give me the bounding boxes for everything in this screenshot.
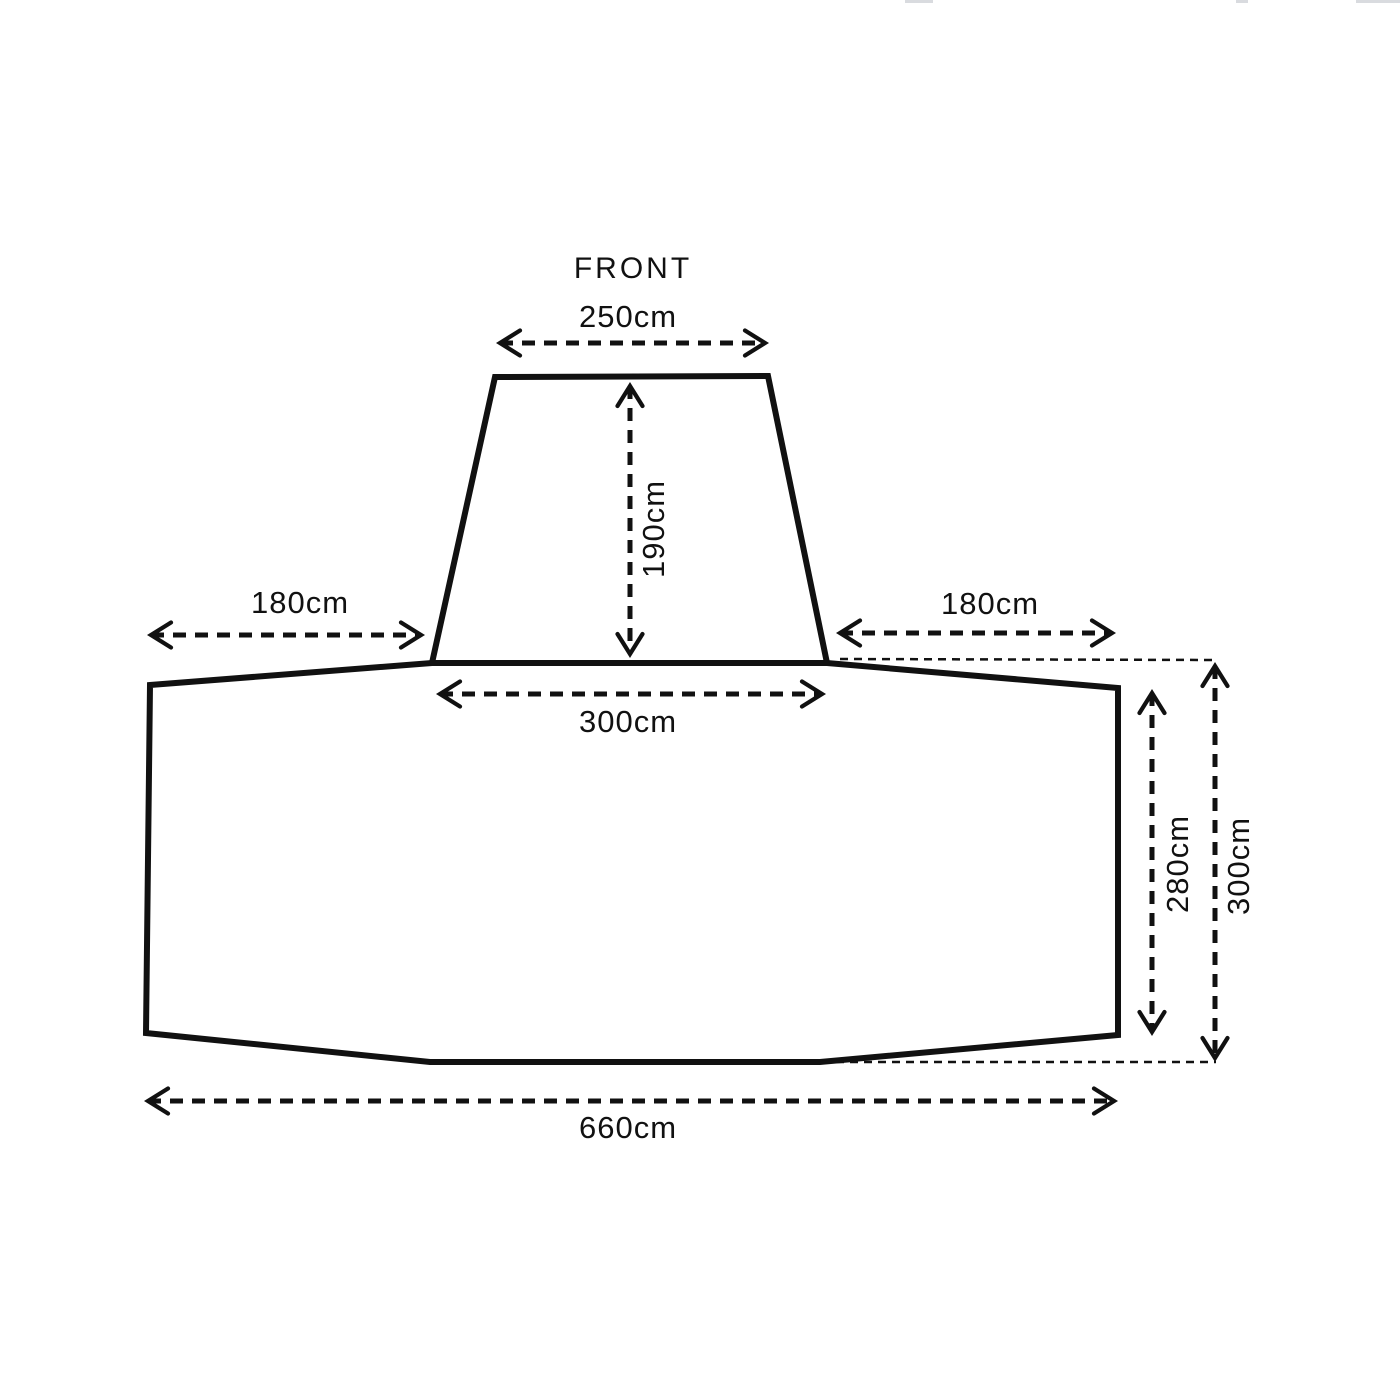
top-edge-artifacts [905, 0, 1400, 3]
label-overall-width: 660cm [579, 1110, 677, 1145]
artifact-mark [905, 0, 933, 3]
label-front-width: 250cm [579, 299, 677, 334]
diagram-canvas: FRONT 250cm 190cm 180cm 180cm 300cm 280c… [0, 0, 1400, 1400]
label-outer-depth: 300cm [1221, 817, 1256, 915]
label-right-offset: 180cm [941, 586, 1039, 621]
diagram-title: FRONT [574, 252, 692, 285]
label-junction-width: 300cm [579, 704, 677, 739]
reference-line-top [840, 659, 1216, 660]
label-inner-depth: 280cm [1160, 815, 1195, 913]
artifact-mark [1236, 0, 1248, 3]
tent-footprint-diagram: FRONT 250cm 190cm 180cm 180cm 300cm 280c… [0, 0, 1400, 1400]
label-left-offset: 180cm [251, 585, 349, 620]
artifact-mark [1356, 0, 1400, 3]
label-front-depth: 190cm [636, 480, 671, 578]
